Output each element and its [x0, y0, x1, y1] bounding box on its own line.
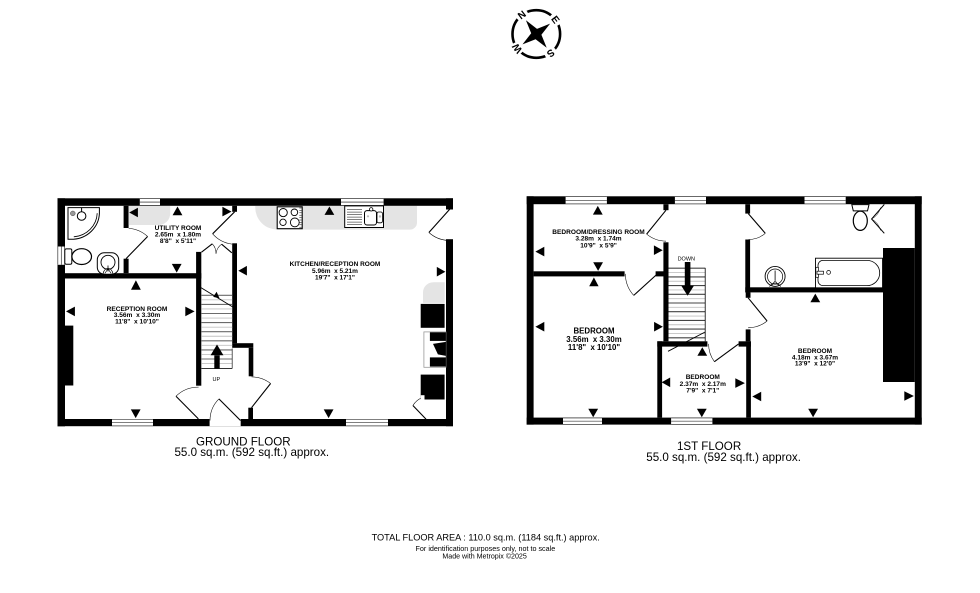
svg-text:DOWN: DOWN [678, 256, 695, 262]
svg-text:11'8" x 10'10": 11'8" x 10'10" [115, 319, 159, 326]
svg-text:Made with Metropix ©2025: Made with Metropix ©2025 [442, 552, 527, 560]
svg-text:10'9" x 5'9": 10'9" x 5'9" [580, 242, 617, 249]
svg-text:11'8" x 10'10": 11'8" x 10'10" [568, 343, 620, 352]
svg-text:19'7" x 17'1": 19'7" x 17'1" [315, 275, 355, 282]
svg-text:55.0 sq.m. (592 sq.ft.) approx: 55.0 sq.m. (592 sq.ft.) approx. [646, 451, 801, 464]
svg-text:13'9" x 12'0": 13'9" x 12'0" [795, 360, 835, 367]
svg-text:8'8" x 5'11": 8'8" x 5'11" [160, 238, 196, 245]
svg-text:UP: UP [212, 377, 220, 383]
svg-text:TOTAL FLOOR AREA : 110.0 sq.m.: TOTAL FLOOR AREA : 110.0 sq.m. (1184 sq.… [372, 533, 600, 543]
svg-text:55.0 sq.m. (592 sq.ft.) approx: 55.0 sq.m. (592 sq.ft.) approx. [174, 446, 329, 459]
svg-text:7'9" x 7'1": 7'9" x 7'1" [686, 387, 719, 394]
